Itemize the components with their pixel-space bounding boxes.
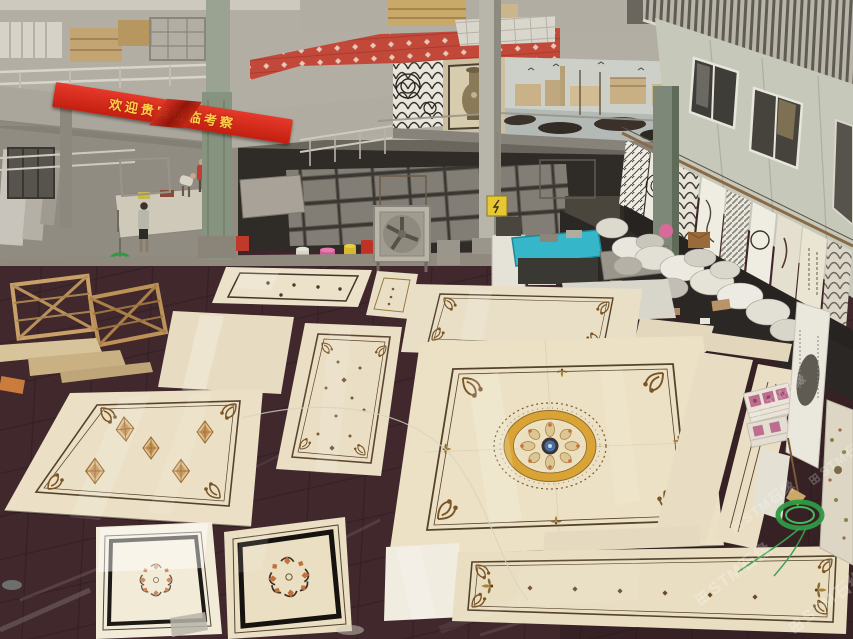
column-thin [60, 108, 72, 228]
exhaust-fan [374, 206, 430, 272]
dust-patch [336, 625, 364, 635]
white-tile-patch [455, 16, 555, 46]
door-panel [833, 120, 853, 225]
panel-plain-slab [158, 311, 294, 394]
factory-photo: 欢迎贵宾莅临考察 ⊞STM石缘 ⊞STM石缘 ⊞STM石缘 ⊞STM石缘 ⊞ST… [0, 0, 853, 639]
cyan-work-table [512, 230, 602, 284]
warning-sign [487, 196, 507, 216]
stool-box [437, 240, 460, 265]
red-box [234, 236, 249, 251]
mural-band [378, 57, 688, 154]
panel-plain-white [384, 543, 463, 621]
pallet-stack [388, 0, 466, 26]
wood-crate-stack [70, 28, 122, 62]
panel-wreath-right [224, 517, 352, 639]
campanile-tower [560, 66, 565, 106]
panel-dotted-border [212, 267, 372, 307]
paint-splotch [2, 580, 22, 590]
